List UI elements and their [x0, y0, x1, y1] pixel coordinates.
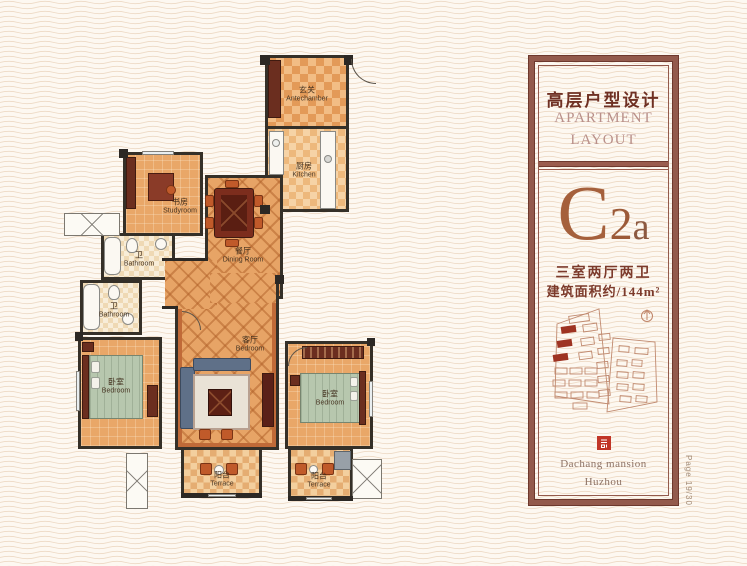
armchair [199, 429, 211, 440]
cabinet-x-box [64, 213, 120, 236]
spec-rooms: 三室两厅两卫 [539, 262, 668, 282]
window [142, 151, 174, 155]
bathtub [104, 237, 121, 275]
kitchen-counter-right [320, 131, 336, 209]
unit-suffix: a [633, 208, 650, 246]
window [208, 494, 236, 497]
bathtub [83, 284, 100, 330]
site-plan-map [543, 304, 665, 426]
room-label-bedroom-right: 卧室 Bedroom [316, 390, 344, 409]
page-number: Page 19/30 [684, 455, 693, 515]
nightstand [290, 375, 300, 386]
spec-area: 建筑面积约/144m² [539, 281, 668, 300]
room-label-terrace-right: 阳台 Terrace [307, 472, 330, 491]
dining-chair [254, 217, 263, 229]
tv-cabinet [262, 373, 274, 427]
kitchen-stove-icon [324, 155, 332, 163]
bed-headboard [359, 371, 366, 425]
info-panel-inner: 高层户型设计 APARTMENT LAYOUT C 2 a 三室两厅两卫 建筑面… [538, 65, 669, 496]
floor-plan: 玄关 Antechamber 厨房 Kitchen 书房 Studyroom 餐… [62, 55, 434, 513]
dining-chair [205, 217, 214, 229]
dresser [147, 385, 158, 417]
wardrobe [302, 346, 364, 359]
ac-unit [334, 451, 351, 470]
antechamber-cabinet [268, 60, 281, 118]
window [76, 371, 80, 411]
dining-chair [225, 180, 239, 188]
study-chair [166, 185, 176, 195]
pillow [350, 391, 358, 401]
pillow [91, 377, 100, 389]
room-label-terrace-left: 阳台 Terrace [210, 471, 233, 490]
wall-column [75, 332, 83, 341]
kitchen-sink-icon [272, 139, 280, 147]
terrace-chair [295, 463, 307, 475]
unit-digit: 2 [610, 201, 633, 247]
wall-column [275, 275, 284, 284]
panel-title-en-line2: LAYOUT [539, 132, 668, 149]
toilet-icon [108, 285, 120, 300]
room-label-bathroom-1: 卫 Bathroom [124, 251, 154, 270]
armchair [221, 429, 233, 440]
info-panel: 高层户型设计 APARTMENT LAYOUT C 2 a 三室两厅两卫 建筑面… [529, 56, 678, 505]
room-label-bedroom-left: 卧室 Bedroom [102, 378, 130, 397]
dining-table-top [221, 195, 247, 231]
north-arrow-icon [641, 310, 652, 322]
wall-column [367, 338, 375, 346]
room-label-living: 客厅 Bedroom [236, 336, 264, 355]
panel-title-en-line1: APARTMENT [539, 110, 668, 127]
coffee-table [208, 389, 232, 416]
ac-platform [352, 459, 382, 499]
dining-living-junction [210, 273, 276, 303]
unit-letter: C [558, 174, 610, 252]
brand-seal-icon [597, 436, 611, 450]
wall-column [260, 205, 270, 214]
panel-divider [539, 161, 668, 167]
panel-title-cn: 高层户型设计 [539, 86, 668, 111]
pillow [350, 377, 358, 387]
brand-text: Dachang mansion Huzhou [539, 456, 668, 491]
study-bookshelf [126, 157, 136, 209]
room-label-dining: 餐厅 Dining Room [223, 247, 263, 266]
window [369, 381, 373, 417]
hallway-wall-bottom [162, 306, 178, 309]
hallway-wall-top [162, 258, 208, 261]
pillow [91, 361, 100, 373]
nightstand [82, 342, 94, 352]
room-label-bathroom-2: 卫 Bathroom [99, 302, 129, 321]
room-label-kitchen: 厨房 Kitchen [292, 162, 315, 181]
unit-code: C 2 a [539, 174, 668, 258]
room-label-studyroom: 书房 Studyroom [163, 198, 197, 217]
brand-line1: Dachang mansion [539, 456, 668, 474]
ac-platform [126, 453, 148, 509]
dining-chair [205, 195, 214, 207]
wall-column [119, 149, 128, 158]
entry-door-arc [351, 59, 376, 84]
brochure-page: { "background": { "color": "#fdf8f1", "w… [0, 0, 747, 566]
sink-icon [155, 238, 167, 250]
kitchen-counter-left [269, 131, 284, 175]
dining-table [214, 188, 254, 238]
sofa-top [193, 358, 251, 371]
window [306, 497, 332, 500]
wall-column [260, 55, 270, 65]
room-label-antechamber: 玄关 Antechamber [286, 86, 328, 105]
brand-line2: Huzhou [539, 474, 668, 492]
bed-headboard [82, 355, 89, 419]
